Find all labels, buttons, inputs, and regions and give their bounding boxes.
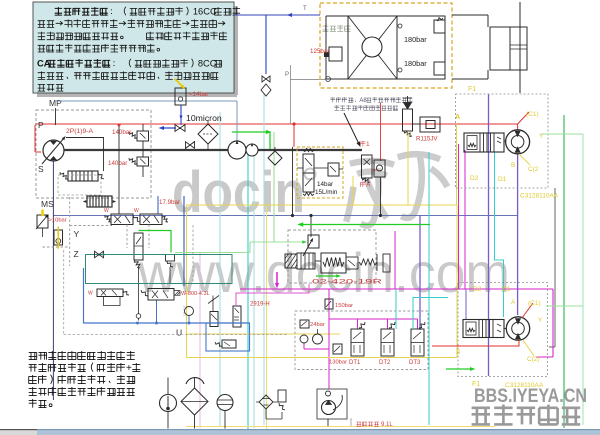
svg-text:9.1L: 9.1L bbox=[381, 422, 393, 428]
svg-text:2919-H: 2919-H bbox=[250, 302, 270, 308]
svg-text:W: W bbox=[88, 291, 93, 297]
svg-text:P: P bbox=[285, 72, 289, 78]
svg-text:17.9bar: 17.9bar bbox=[159, 199, 180, 206]
svg-text:MS: MS bbox=[41, 199, 54, 209]
svg-text:P: P bbox=[38, 120, 44, 130]
svg-text:130bar: 130bar bbox=[329, 360, 347, 366]
svg-text:Z: Z bbox=[74, 249, 79, 259]
svg-text:14bar: 14bar bbox=[317, 181, 333, 188]
svg-text:DT2: DT2 bbox=[379, 360, 391, 366]
svg-text:B: B bbox=[511, 162, 515, 169]
svg-text:D1: D1 bbox=[498, 176, 507, 183]
svg-text:16CC: 16CC bbox=[193, 7, 217, 17]
svg-text:180bar: 180bar bbox=[404, 59, 427, 68]
svg-text:140bar: 140bar bbox=[108, 160, 127, 167]
svg-text:+: + bbox=[126, 363, 132, 374]
svg-text:150bar: 150bar bbox=[335, 303, 353, 309]
svg-text:C3128110AA: C3128110AA bbox=[520, 193, 559, 200]
svg-text:BBS.IYEYA.CN: BBS.IYEYA.CN bbox=[474, 385, 587, 407]
svg-text:8CC: 8CC bbox=[198, 59, 217, 69]
svg-text:D2: D2 bbox=[473, 286, 482, 293]
svg-text:125bar: 125bar bbox=[310, 48, 329, 55]
svg-text:W-800-4.3L: W-800-4.3L bbox=[181, 291, 210, 297]
svg-text:180bar: 180bar bbox=[404, 35, 427, 44]
svg-text:<14bar: <14bar bbox=[189, 91, 208, 98]
svg-text:>10bar: >10bar bbox=[49, 218, 67, 224]
svg-text:F1: F1 bbox=[468, 86, 476, 93]
svg-text:140bar: 140bar bbox=[112, 129, 131, 136]
svg-text:15L/min: 15L/min bbox=[315, 189, 338, 196]
svg-text:W: W bbox=[104, 208, 109, 214]
svg-text:1: 1 bbox=[366, 141, 370, 148]
svg-text:(C1): (C1) bbox=[528, 300, 541, 307]
svg-text:2P(1)9-A: 2P(1)9-A bbox=[66, 128, 94, 135]
svg-text:02-420-19R: 02-420-19R bbox=[312, 279, 383, 286]
svg-text:Y: Y bbox=[538, 317, 543, 324]
svg-text:A8: A8 bbox=[359, 98, 367, 104]
svg-text:C(2: C(2 bbox=[528, 166, 539, 173]
svg-text:S: S bbox=[38, 164, 44, 174]
svg-text:D2: D2 bbox=[470, 175, 479, 182]
svg-text:DT3: DT3 bbox=[409, 360, 421, 366]
svg-text:T: T bbox=[303, 6, 307, 12]
svg-text:U: U bbox=[176, 328, 182, 338]
svg-text:DT1: DT1 bbox=[349, 360, 361, 366]
svg-text:R115JV: R115JV bbox=[416, 136, 438, 143]
svg-text:(C1): (C1) bbox=[526, 111, 539, 118]
svg-text:24bar: 24bar bbox=[310, 322, 325, 328]
svg-text:MP: MP bbox=[49, 98, 62, 108]
svg-text:D1: D1 bbox=[502, 286, 511, 293]
svg-text:C(2): C(2) bbox=[527, 356, 540, 363]
svg-text:W: W bbox=[134, 208, 139, 214]
svg-text:B: B bbox=[456, 349, 460, 356]
svg-text:A: A bbox=[511, 299, 516, 306]
svg-text:Y: Y bbox=[74, 229, 80, 239]
svg-text:10micron: 10micron bbox=[186, 113, 222, 123]
